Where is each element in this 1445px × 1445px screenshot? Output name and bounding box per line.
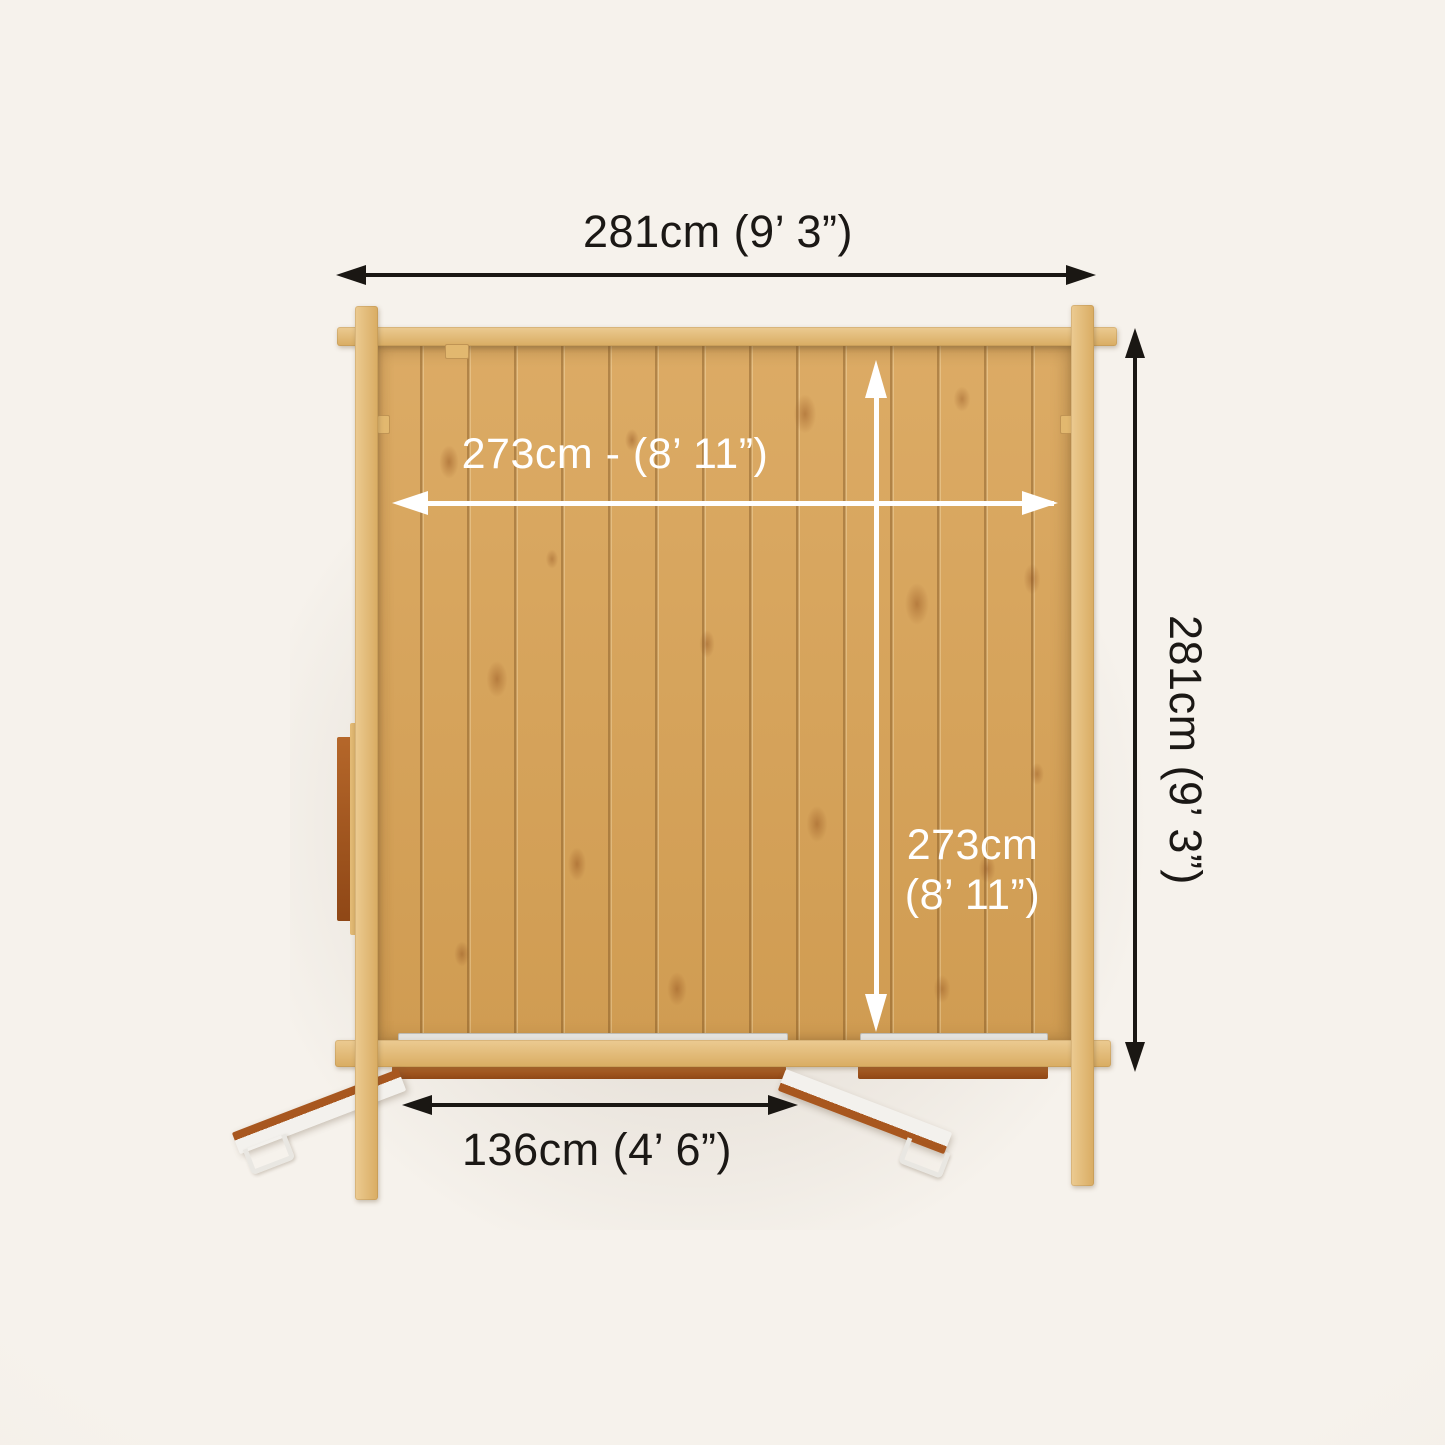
overall-depth-label: 281cm (9’ 3”): [1155, 450, 1211, 1050]
arrowhead-left-icon: [402, 1095, 432, 1115]
arrowhead-right-icon: [1066, 265, 1096, 285]
internal-width-line: [402, 501, 1054, 506]
internal-depth-cm: 273cm: [885, 820, 1060, 870]
right-wall-log: [1071, 305, 1094, 1186]
arrowhead-down-icon: [1125, 1042, 1145, 1072]
purlin-notch: [445, 344, 469, 359]
arrowhead-left-icon: [392, 491, 428, 515]
overall-depth-line: [1133, 338, 1137, 1062]
arrowhead-left-icon: [336, 265, 366, 285]
door-threshold: [392, 1066, 786, 1079]
overall-width-label: 281cm (9’ 3”): [368, 206, 1068, 258]
bottom-wall-log: [335, 1040, 1111, 1067]
arrowhead-right-icon: [768, 1095, 798, 1115]
arrowhead-up-icon: [1125, 328, 1145, 358]
door-width-line: [414, 1103, 784, 1107]
internal-depth-imperial: (8’ 11”): [885, 870, 1060, 920]
internal-width-label: 273cm - (8’ 11”): [265, 430, 965, 479]
arrowhead-up-icon: [865, 360, 887, 398]
internal-depth-line: [874, 370, 879, 1022]
arrowhead-right-icon: [1022, 491, 1058, 515]
arrowhead-down-icon: [865, 994, 887, 1032]
overall-width-line: [350, 273, 1080, 277]
door-width-label: 136cm (4’ 6”): [247, 1124, 947, 1176]
dimension-diagram: 281cm (9’ 3”) 281cm (9’ 3”) 273cm - (8’ …: [0, 0, 1445, 1445]
internal-depth-label: 273cm (8’ 11”): [885, 820, 1060, 920]
